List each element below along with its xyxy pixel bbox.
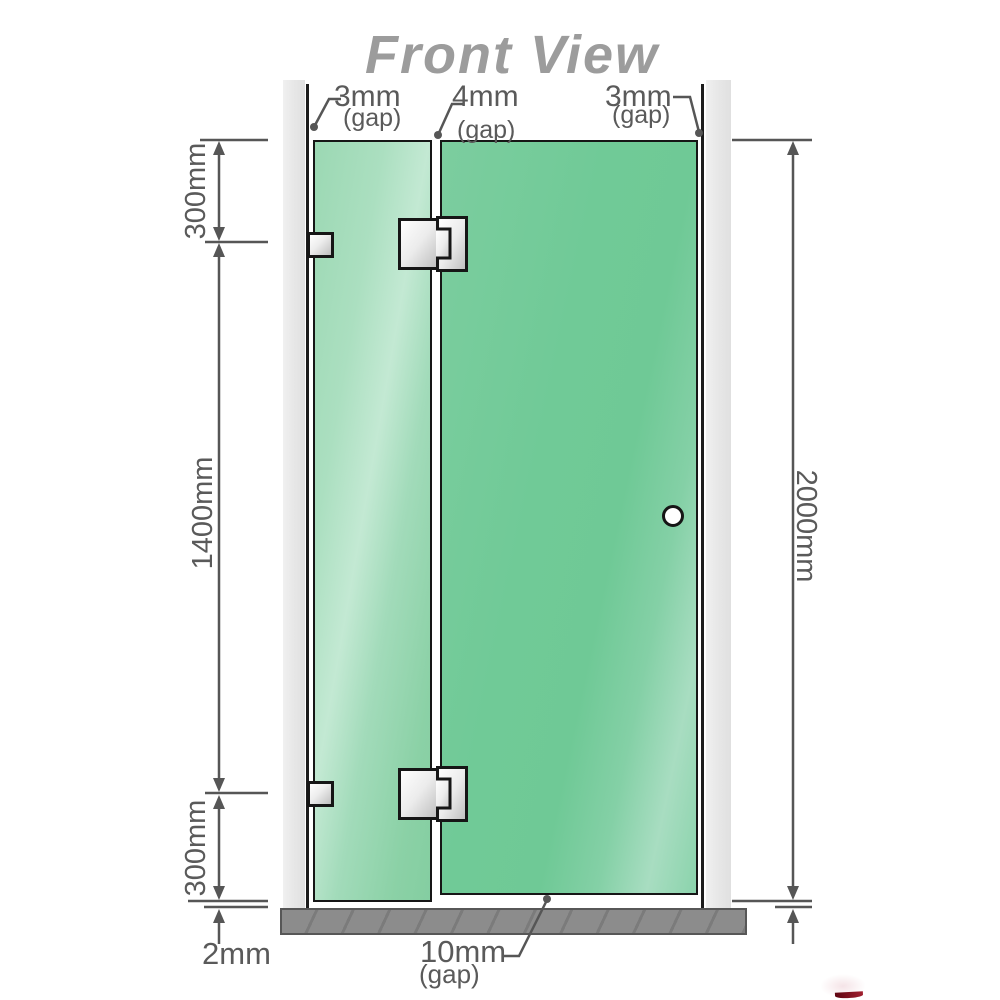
door-floor-gap-unit: (gap) — [419, 961, 480, 987]
leader-dot — [310, 123, 318, 131]
front-view-diagram: Front View — [0, 0, 1000, 1000]
leader-gap-right — [673, 97, 699, 132]
dim-label-300-bottom: 300mm — [181, 788, 211, 908]
right-wall-edge-line — [701, 84, 704, 908]
wall-bracket-bottom — [307, 781, 334, 807]
dim-label-1400: 1400mm — [188, 443, 218, 583]
gap-label-left-unit: (gap) — [343, 106, 401, 131]
page-title: Front View — [337, 24, 687, 86]
dim-label-2000: 2000mm — [791, 451, 821, 601]
glass-hinge-bottom — [398, 766, 468, 822]
floor-base — [280, 908, 747, 935]
arrow-up — [213, 141, 225, 155]
arrow-up — [787, 141, 799, 155]
door-glass-panel — [440, 140, 698, 895]
arrow-down — [213, 227, 225, 241]
logo-remnant — [835, 991, 863, 998]
left-wall — [283, 80, 305, 908]
door-handle-knob — [662, 505, 684, 527]
leader-dot — [434, 131, 442, 139]
glass-hinge-top — [398, 216, 468, 272]
arrow-down — [213, 886, 225, 900]
gap-label-middle-unit: (gap) — [457, 118, 515, 143]
arrow-up — [787, 909, 799, 923]
arrow-up — [213, 795, 225, 809]
right-wall — [706, 80, 731, 908]
floor-gap-label: 2mm — [202, 938, 271, 969]
dim-label-300-top: 300mm — [181, 131, 211, 251]
arrow-down — [787, 886, 799, 900]
wall-bracket-top — [307, 232, 334, 258]
gap-label-right-unit: (gap) — [612, 103, 670, 128]
arrow-up — [213, 243, 225, 257]
arrow-up — [213, 909, 225, 923]
arrow-down — [213, 778, 225, 792]
gap-label-middle-value: 4mm — [452, 82, 519, 112]
leader-dot — [543, 895, 551, 903]
